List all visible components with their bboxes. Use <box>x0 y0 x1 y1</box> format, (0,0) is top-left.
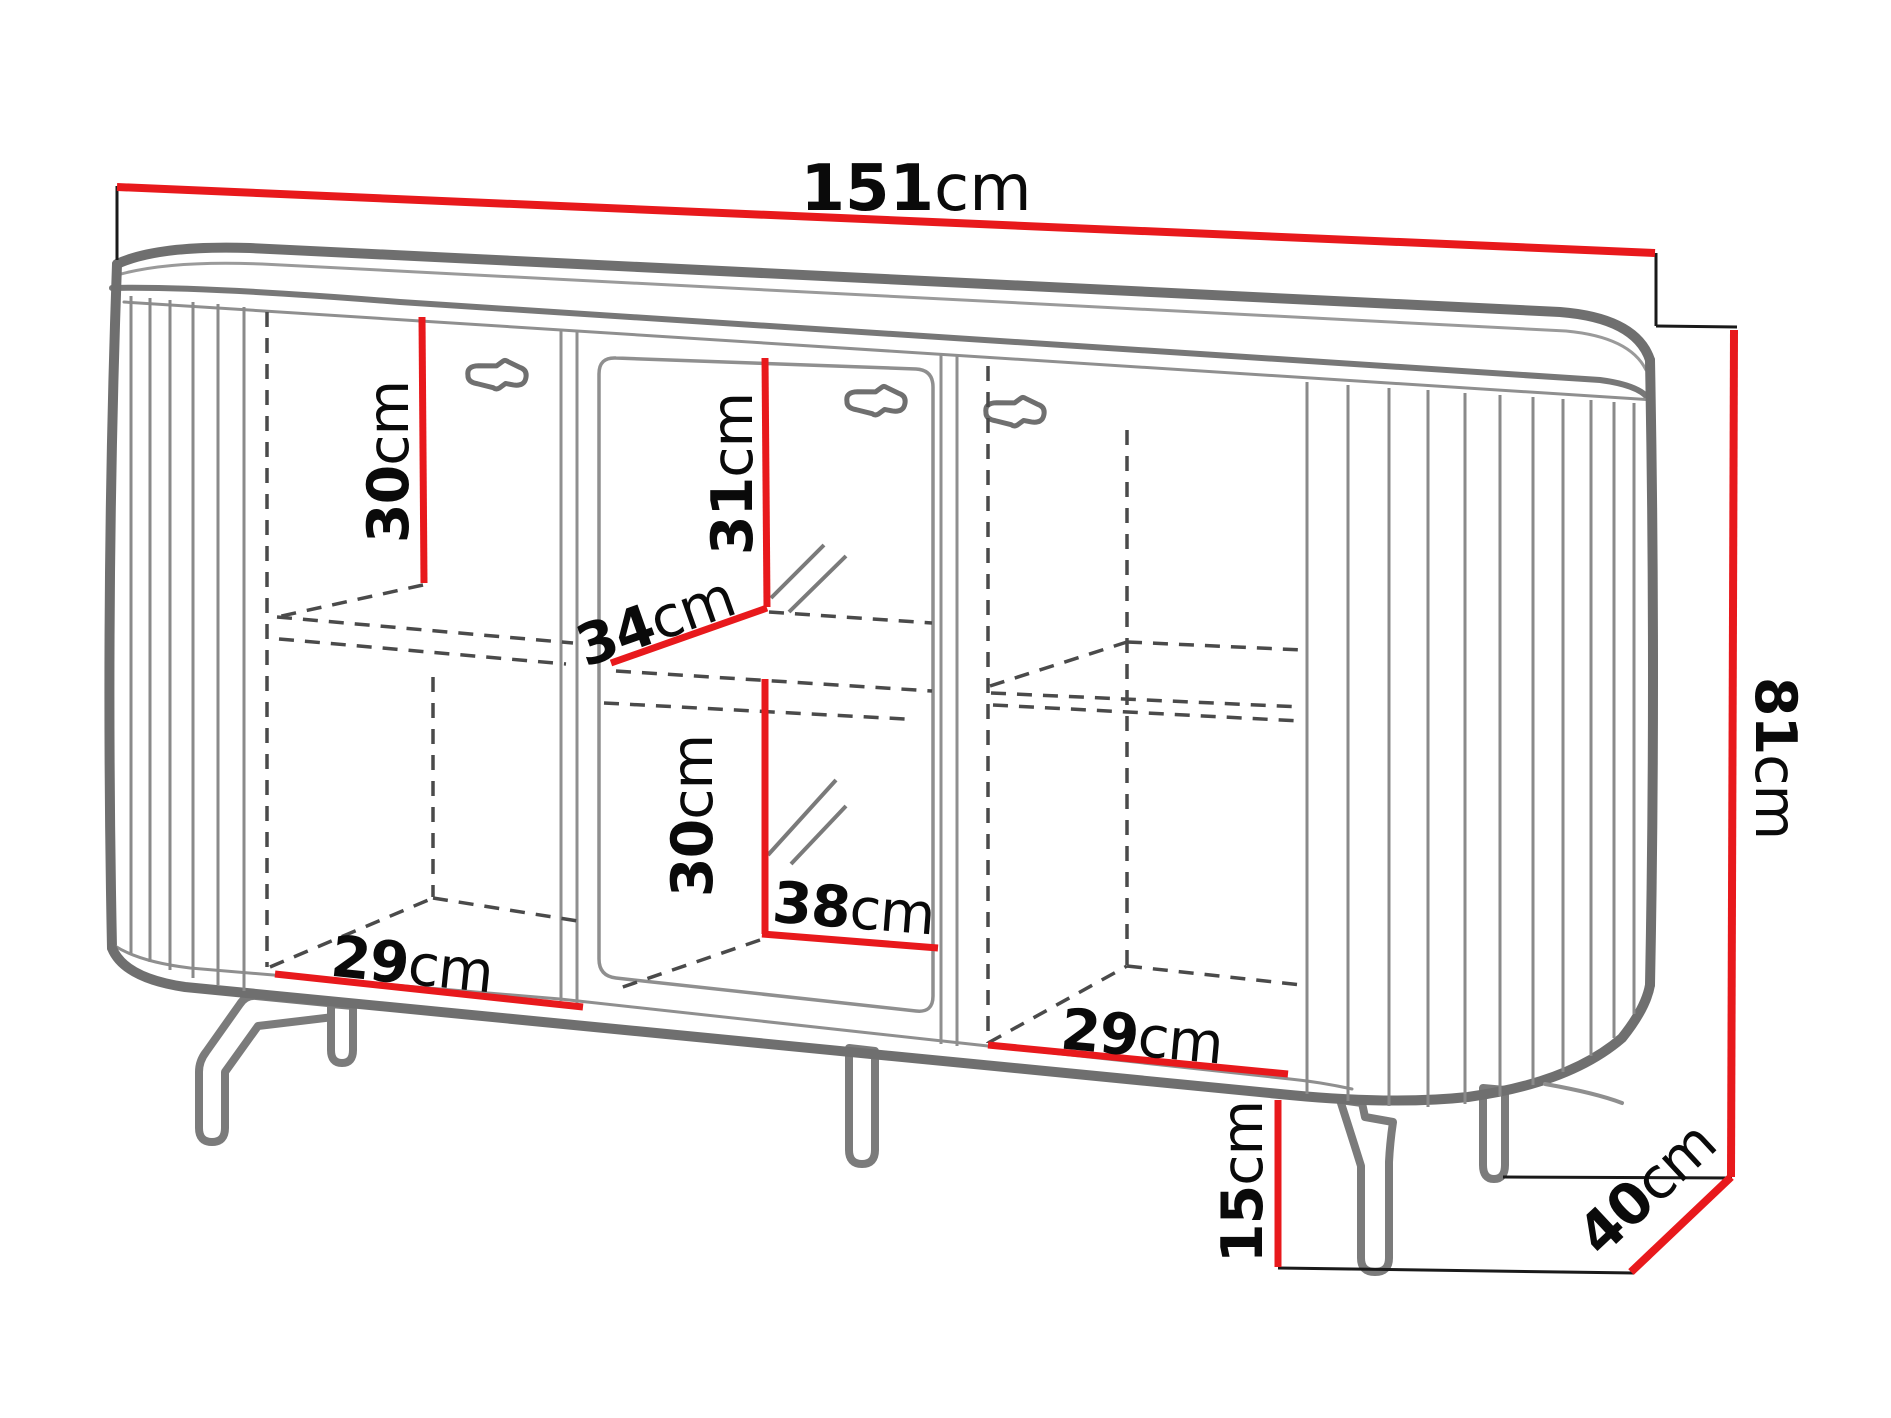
diagram-canvas: 151cm 81cm 40cm 15cm 30cm 31cm 34cm 30cm… <box>0 0 1891 1418</box>
dim-leg-height-label: 15cm <box>1210 1101 1276 1263</box>
right-end-fluting <box>1307 382 1634 1107</box>
front-left-angled-leg <box>199 996 342 1142</box>
depth-tick-bottom <box>1278 1268 1634 1273</box>
dim-mid-width-label: 38cm <box>770 870 937 949</box>
dim-height-line <box>1731 330 1734 1177</box>
right-door-handle-icon <box>985 395 1045 428</box>
dim-depth-label: 40cm <box>1565 1110 1729 1269</box>
top-back-edge <box>117 248 1650 360</box>
legs <box>199 996 1505 1272</box>
dim-left-top-label: 30cm <box>356 381 422 543</box>
dim-mid-shelf-label: 34cm <box>568 564 743 680</box>
doors-top-line <box>124 302 1654 400</box>
dim-mid-top-label: 31cm <box>700 393 766 555</box>
height-tick-top <box>1656 326 1737 327</box>
left-end-fluting <box>131 296 244 991</box>
middle-door-handle-icon <box>846 384 906 417</box>
left-door-handle-icon <box>467 358 527 391</box>
front-middle-leg <box>849 1048 875 1164</box>
front-right-leg <box>1483 1088 1505 1179</box>
dim-width-label: 151cm <box>800 152 1031 226</box>
left-side-edge <box>109 264 117 948</box>
dim-height-label: 81cm <box>1742 677 1808 839</box>
dim-left-width-label: 29cm <box>328 924 496 1007</box>
sideboard-dimension-diagram: 151cm 81cm 40cm 15cm 30cm 31cm 34cm 30cm… <box>0 0 1891 1418</box>
glass-reflection-hatches <box>768 545 846 864</box>
right-end-under-edge <box>1545 1084 1622 1103</box>
right-side-edge <box>1650 360 1653 985</box>
dim-left-top-line <box>422 317 424 583</box>
dim-mid-bottom-label: 30cm <box>660 735 726 897</box>
right-compartment-interior <box>988 366 1303 1043</box>
rear-left-leg <box>331 1004 353 1063</box>
rear-right-angled-leg <box>1340 1100 1393 1272</box>
dim-right-width-label: 29cm <box>1058 997 1226 1078</box>
